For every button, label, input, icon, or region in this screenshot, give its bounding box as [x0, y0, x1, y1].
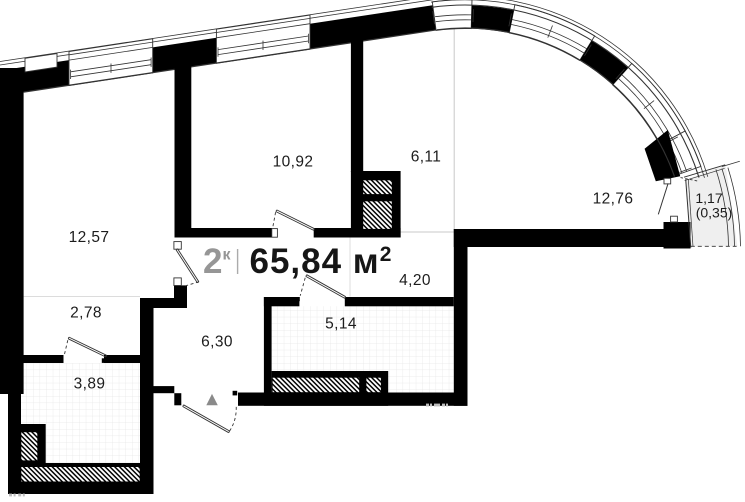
svg-text:65,84 м2: 65,84 м2 [250, 242, 393, 281]
svg-text:4,20: 4,20 [399, 272, 431, 289]
svg-text:2,78: 2,78 [70, 305, 102, 322]
svg-text:12,57: 12,57 [69, 229, 110, 246]
svg-text:12,76: 12,76 [593, 191, 634, 208]
svg-text:5,14: 5,14 [325, 316, 357, 333]
svg-text:10,92: 10,92 [273, 154, 314, 171]
svg-text:6,11: 6,11 [411, 149, 442, 166]
svg-text:3,89: 3,89 [74, 376, 106, 393]
svg-text:(0,35): (0,35) [696, 204, 733, 220]
svg-text:6,30: 6,30 [201, 334, 233, 351]
